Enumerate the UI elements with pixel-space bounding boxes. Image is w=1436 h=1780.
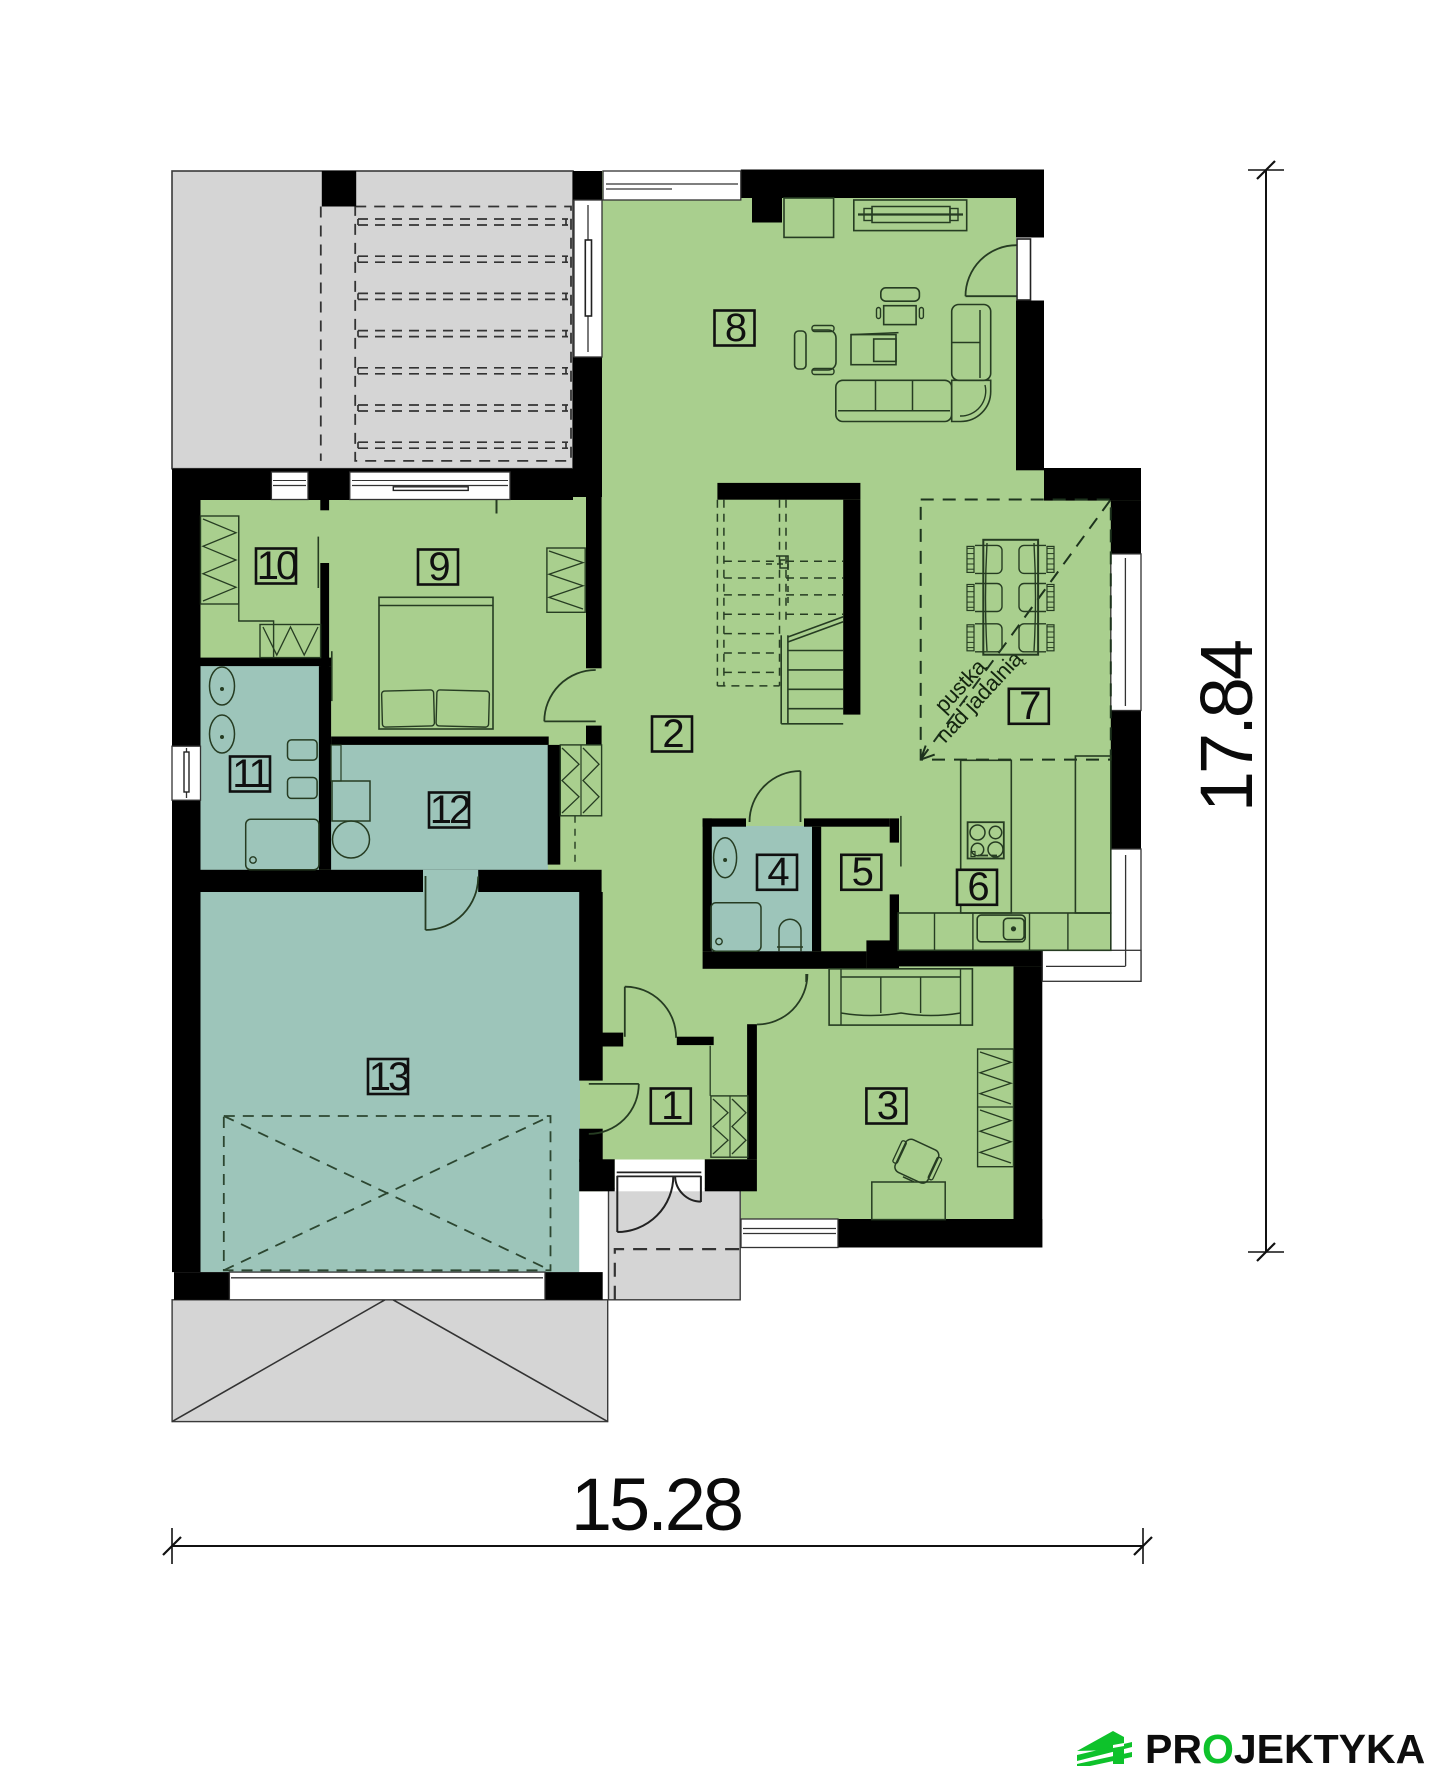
svg-text:10: 10 — [257, 544, 297, 588]
svg-text:17.84: 17.84 — [1185, 641, 1268, 812]
svg-text:8: 8 — [725, 306, 746, 350]
svg-text:15.28: 15.28 — [571, 1463, 741, 1546]
svg-text:13: 13 — [369, 1055, 409, 1099]
svg-text:3: 3 — [877, 1084, 898, 1128]
svg-text:4: 4 — [767, 850, 789, 894]
svg-text:7: 7 — [1019, 684, 1040, 728]
svg-text:6: 6 — [967, 865, 988, 909]
svg-text:5: 5 — [852, 850, 873, 894]
svg-text:11: 11 — [232, 752, 269, 796]
svg-text:PROJEKTYKA: PROJEKTYKA — [1145, 1726, 1425, 1772]
svg-text:9: 9 — [428, 545, 449, 589]
svg-text:12: 12 — [430, 788, 470, 832]
svg-text:1: 1 — [661, 1084, 682, 1128]
svg-text:2: 2 — [662, 712, 683, 756]
